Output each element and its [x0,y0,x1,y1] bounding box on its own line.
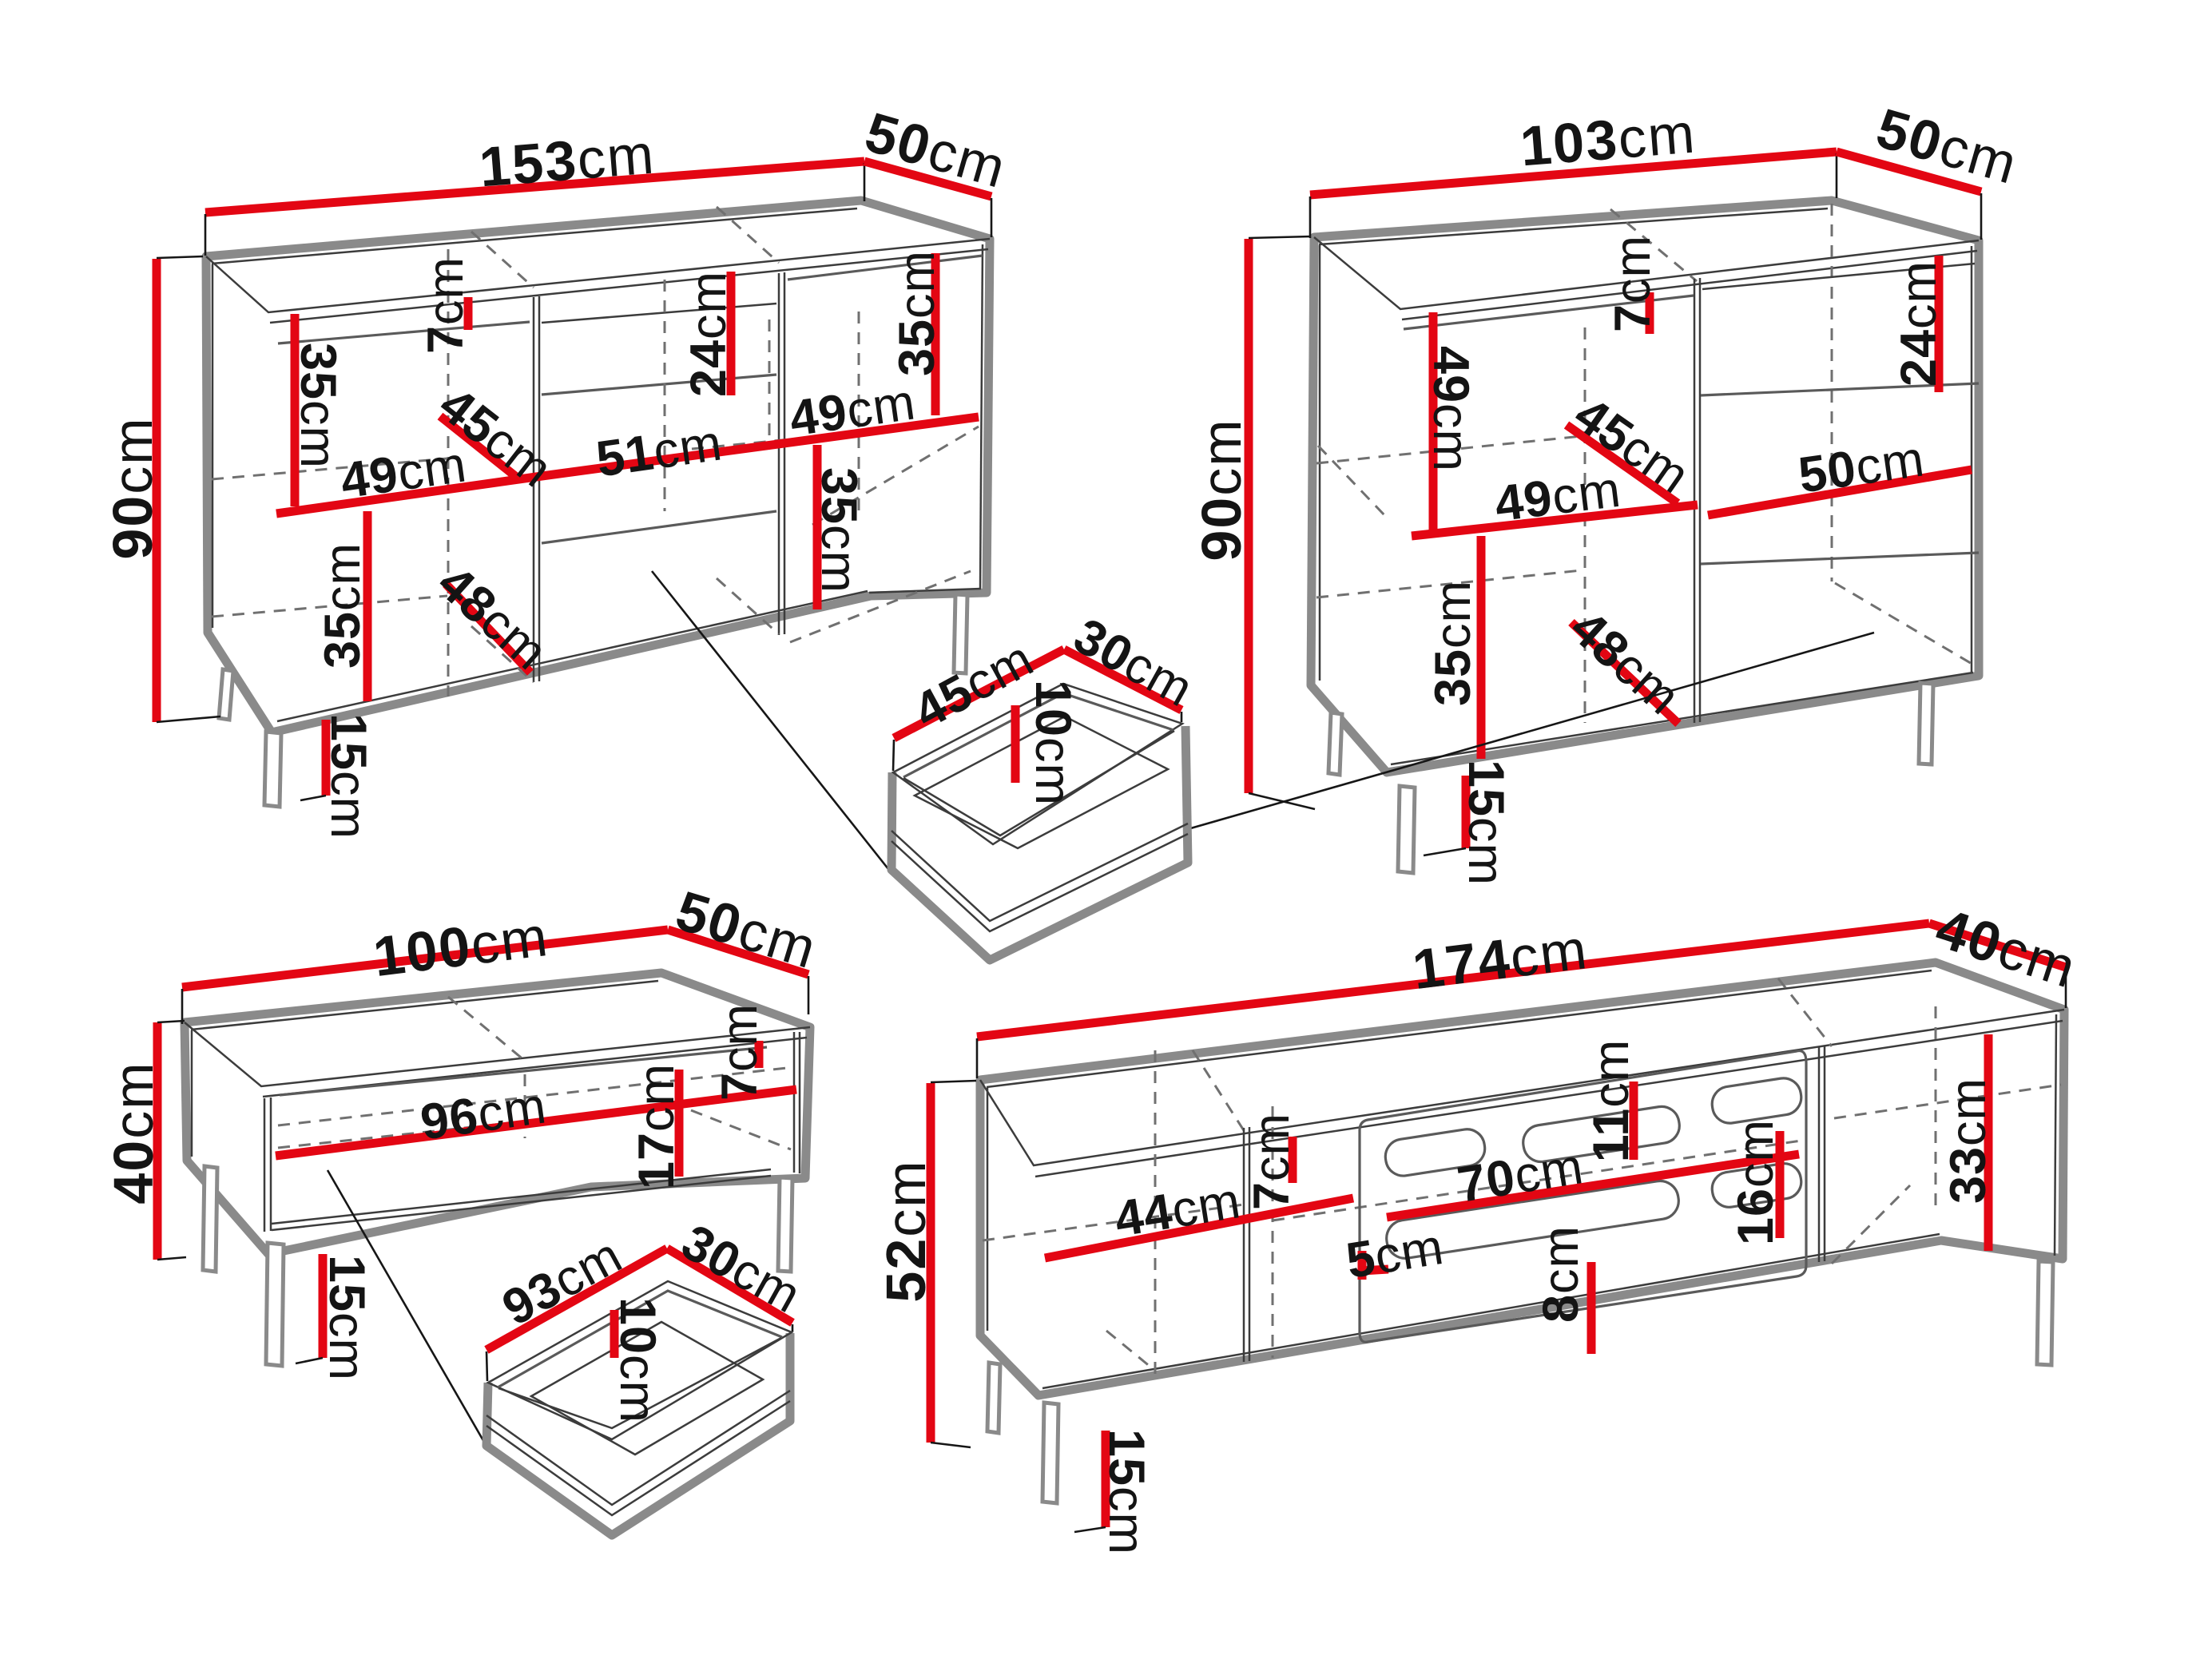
svg-text:49cm: 49cm [1423,346,1479,472]
svg-text:10cm: 10cm [610,1297,665,1423]
svg-text:35cm: 35cm [290,343,346,469]
svg-text:33cm: 33cm [1940,1078,1996,1204]
svg-text:7cm: 7cm [712,1003,768,1101]
svg-text:15cm: 15cm [319,1255,375,1381]
svg-text:8cm: 8cm [1533,1225,1589,1323]
svg-text:24cm: 24cm [1891,260,1947,387]
svg-text:35cm: 35cm [1425,580,1481,706]
svg-text:40cm: 40cm [102,1061,165,1204]
svg-text:16cm: 16cm [1728,1119,1784,1245]
svg-text:35cm: 35cm [811,467,867,593]
svg-text:11cm: 11cm [1583,1039,1639,1163]
svg-text:15cm: 15cm [320,713,376,839]
svg-text:7cm: 7cm [418,256,474,354]
svg-text:52cm: 52cm [875,1159,937,1302]
svg-text:90cm: 90cm [101,416,164,559]
svg-text:35cm: 35cm [889,250,945,376]
svg-text:35cm: 35cm [315,542,371,669]
svg-text:17cm: 17cm [629,1063,685,1189]
svg-text:7cm: 7cm [1244,1113,1300,1210]
svg-text:90cm: 90cm [1190,418,1253,561]
svg-text:7cm: 7cm [1605,235,1661,332]
svg-text:15cm: 15cm [1458,760,1514,886]
svg-text:10cm: 10cm [1025,680,1081,806]
svg-text:24cm: 24cm [681,271,737,397]
svg-text:15cm: 15cm [1098,1429,1154,1555]
